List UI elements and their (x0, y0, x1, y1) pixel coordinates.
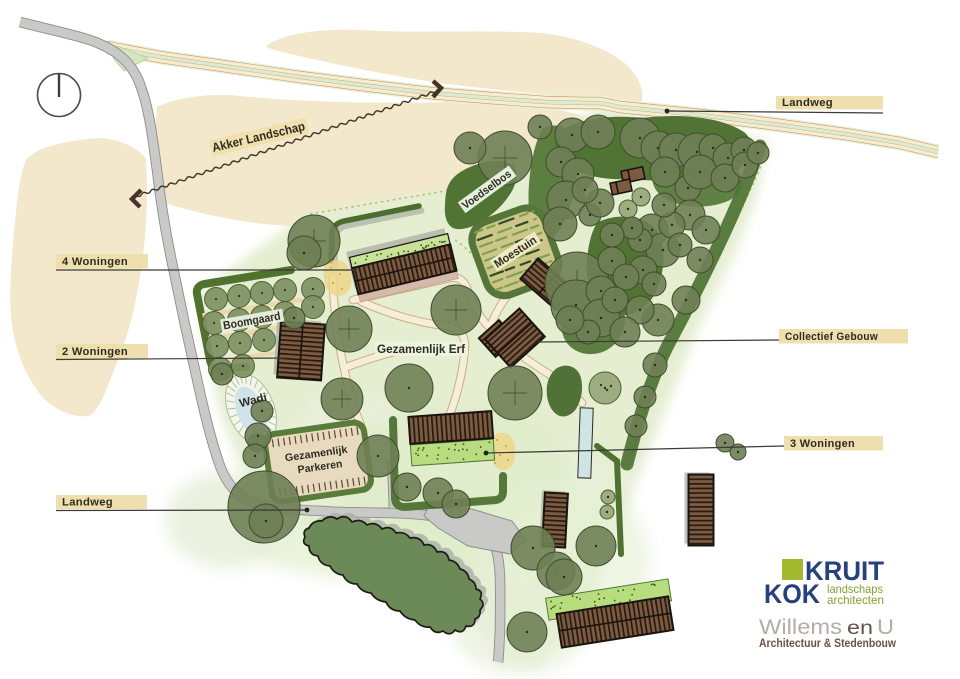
svg-text:Landweg: Landweg (782, 97, 833, 109)
svg-text:3 Woningen: 3 Woningen (790, 438, 855, 450)
svg-text:Architectuur & Stedenbouw: Architectuur & Stedenbouw (759, 636, 896, 650)
svg-text:2 Woningen: 2 Woningen (62, 346, 128, 358)
svg-text:4 Woningen: 4 Woningen (62, 256, 128, 268)
svg-text:Collectief Gebouw: Collectief Gebouw (785, 331, 878, 343)
svg-text:KOK: KOK (764, 579, 820, 609)
svg-text:Landweg: Landweg (62, 497, 113, 509)
svg-text:Gezamenlijk Erf: Gezamenlijk Erf (377, 344, 465, 356)
svg-text:architecten: architecten (827, 593, 884, 607)
